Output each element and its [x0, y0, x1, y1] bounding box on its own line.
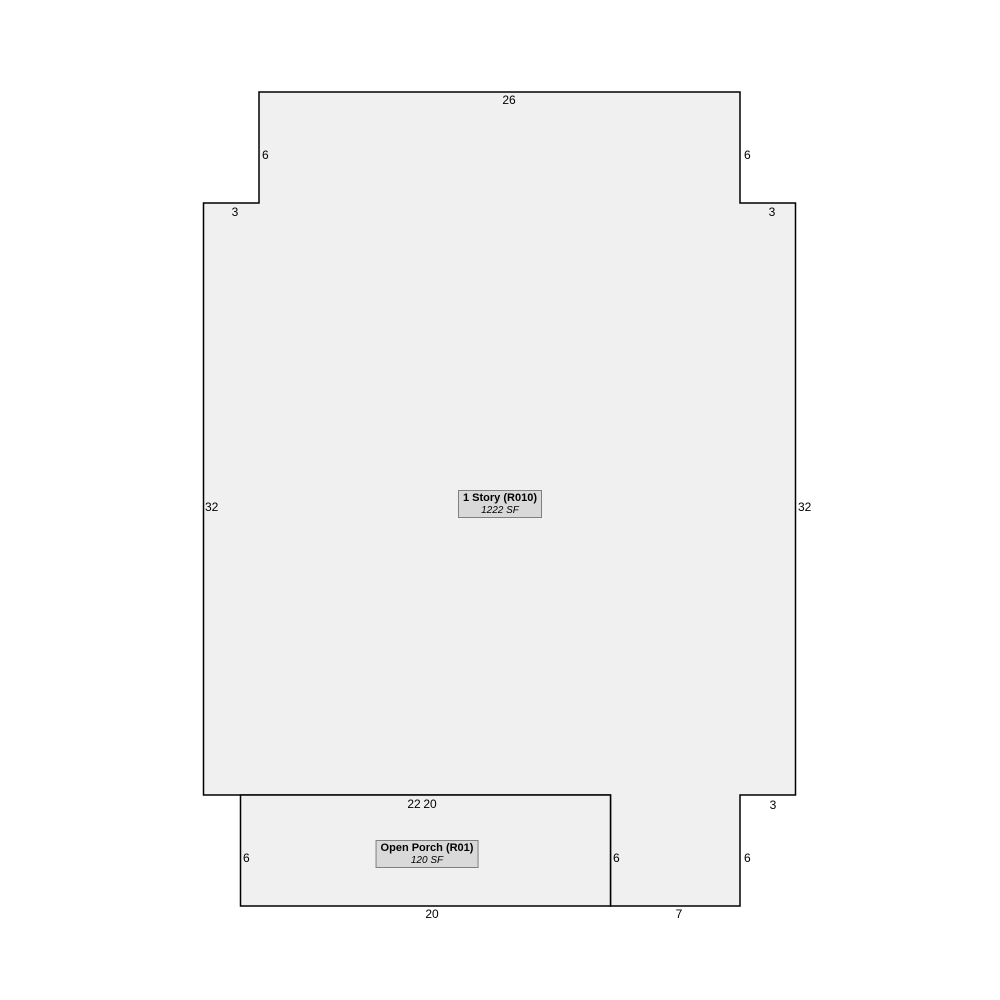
dimension-label-right-height: 32	[798, 500, 811, 514]
dimension-label-porch-top-width: 20	[423, 797, 436, 811]
area-size: 1222 SF	[463, 505, 537, 516]
area-title: Open Porch (R01)	[381, 842, 474, 855]
dimension-label-top-width: 26	[502, 93, 515, 107]
area-label-open-porch: Open Porch (R01) 120 SF	[376, 840, 479, 868]
dimension-label-porch-left-height: 6	[243, 851, 250, 865]
dimension-label-upper-left-step: 3	[232, 205, 239, 219]
dimension-label-upper-left-height: 6	[262, 148, 269, 162]
dimension-label-extension-right-height: 6	[744, 851, 751, 865]
dimension-label-upper-right-height: 6	[744, 148, 751, 162]
dimension-label-bottom-left-width: 22	[407, 797, 420, 811]
property-sketch-canvas: 266633323222203666207 1 Story (R010) 122…	[0, 0, 1000, 1000]
area-size: 120 SF	[381, 855, 474, 866]
dimension-label-upper-right-step: 3	[769, 205, 776, 219]
dimension-label-porch-right-height: 6	[613, 851, 620, 865]
area-label-main-building: 1 Story (R010) 1222 SF	[458, 490, 542, 518]
dimension-label-extension-bottom-width: 7	[676, 907, 683, 921]
area-title: 1 Story (R010)	[463, 492, 537, 505]
dimension-label-left-height: 32	[205, 500, 218, 514]
dimension-label-bottom-right-step: 3	[770, 798, 777, 812]
dimension-label-porch-bottom-width: 20	[425, 907, 438, 921]
